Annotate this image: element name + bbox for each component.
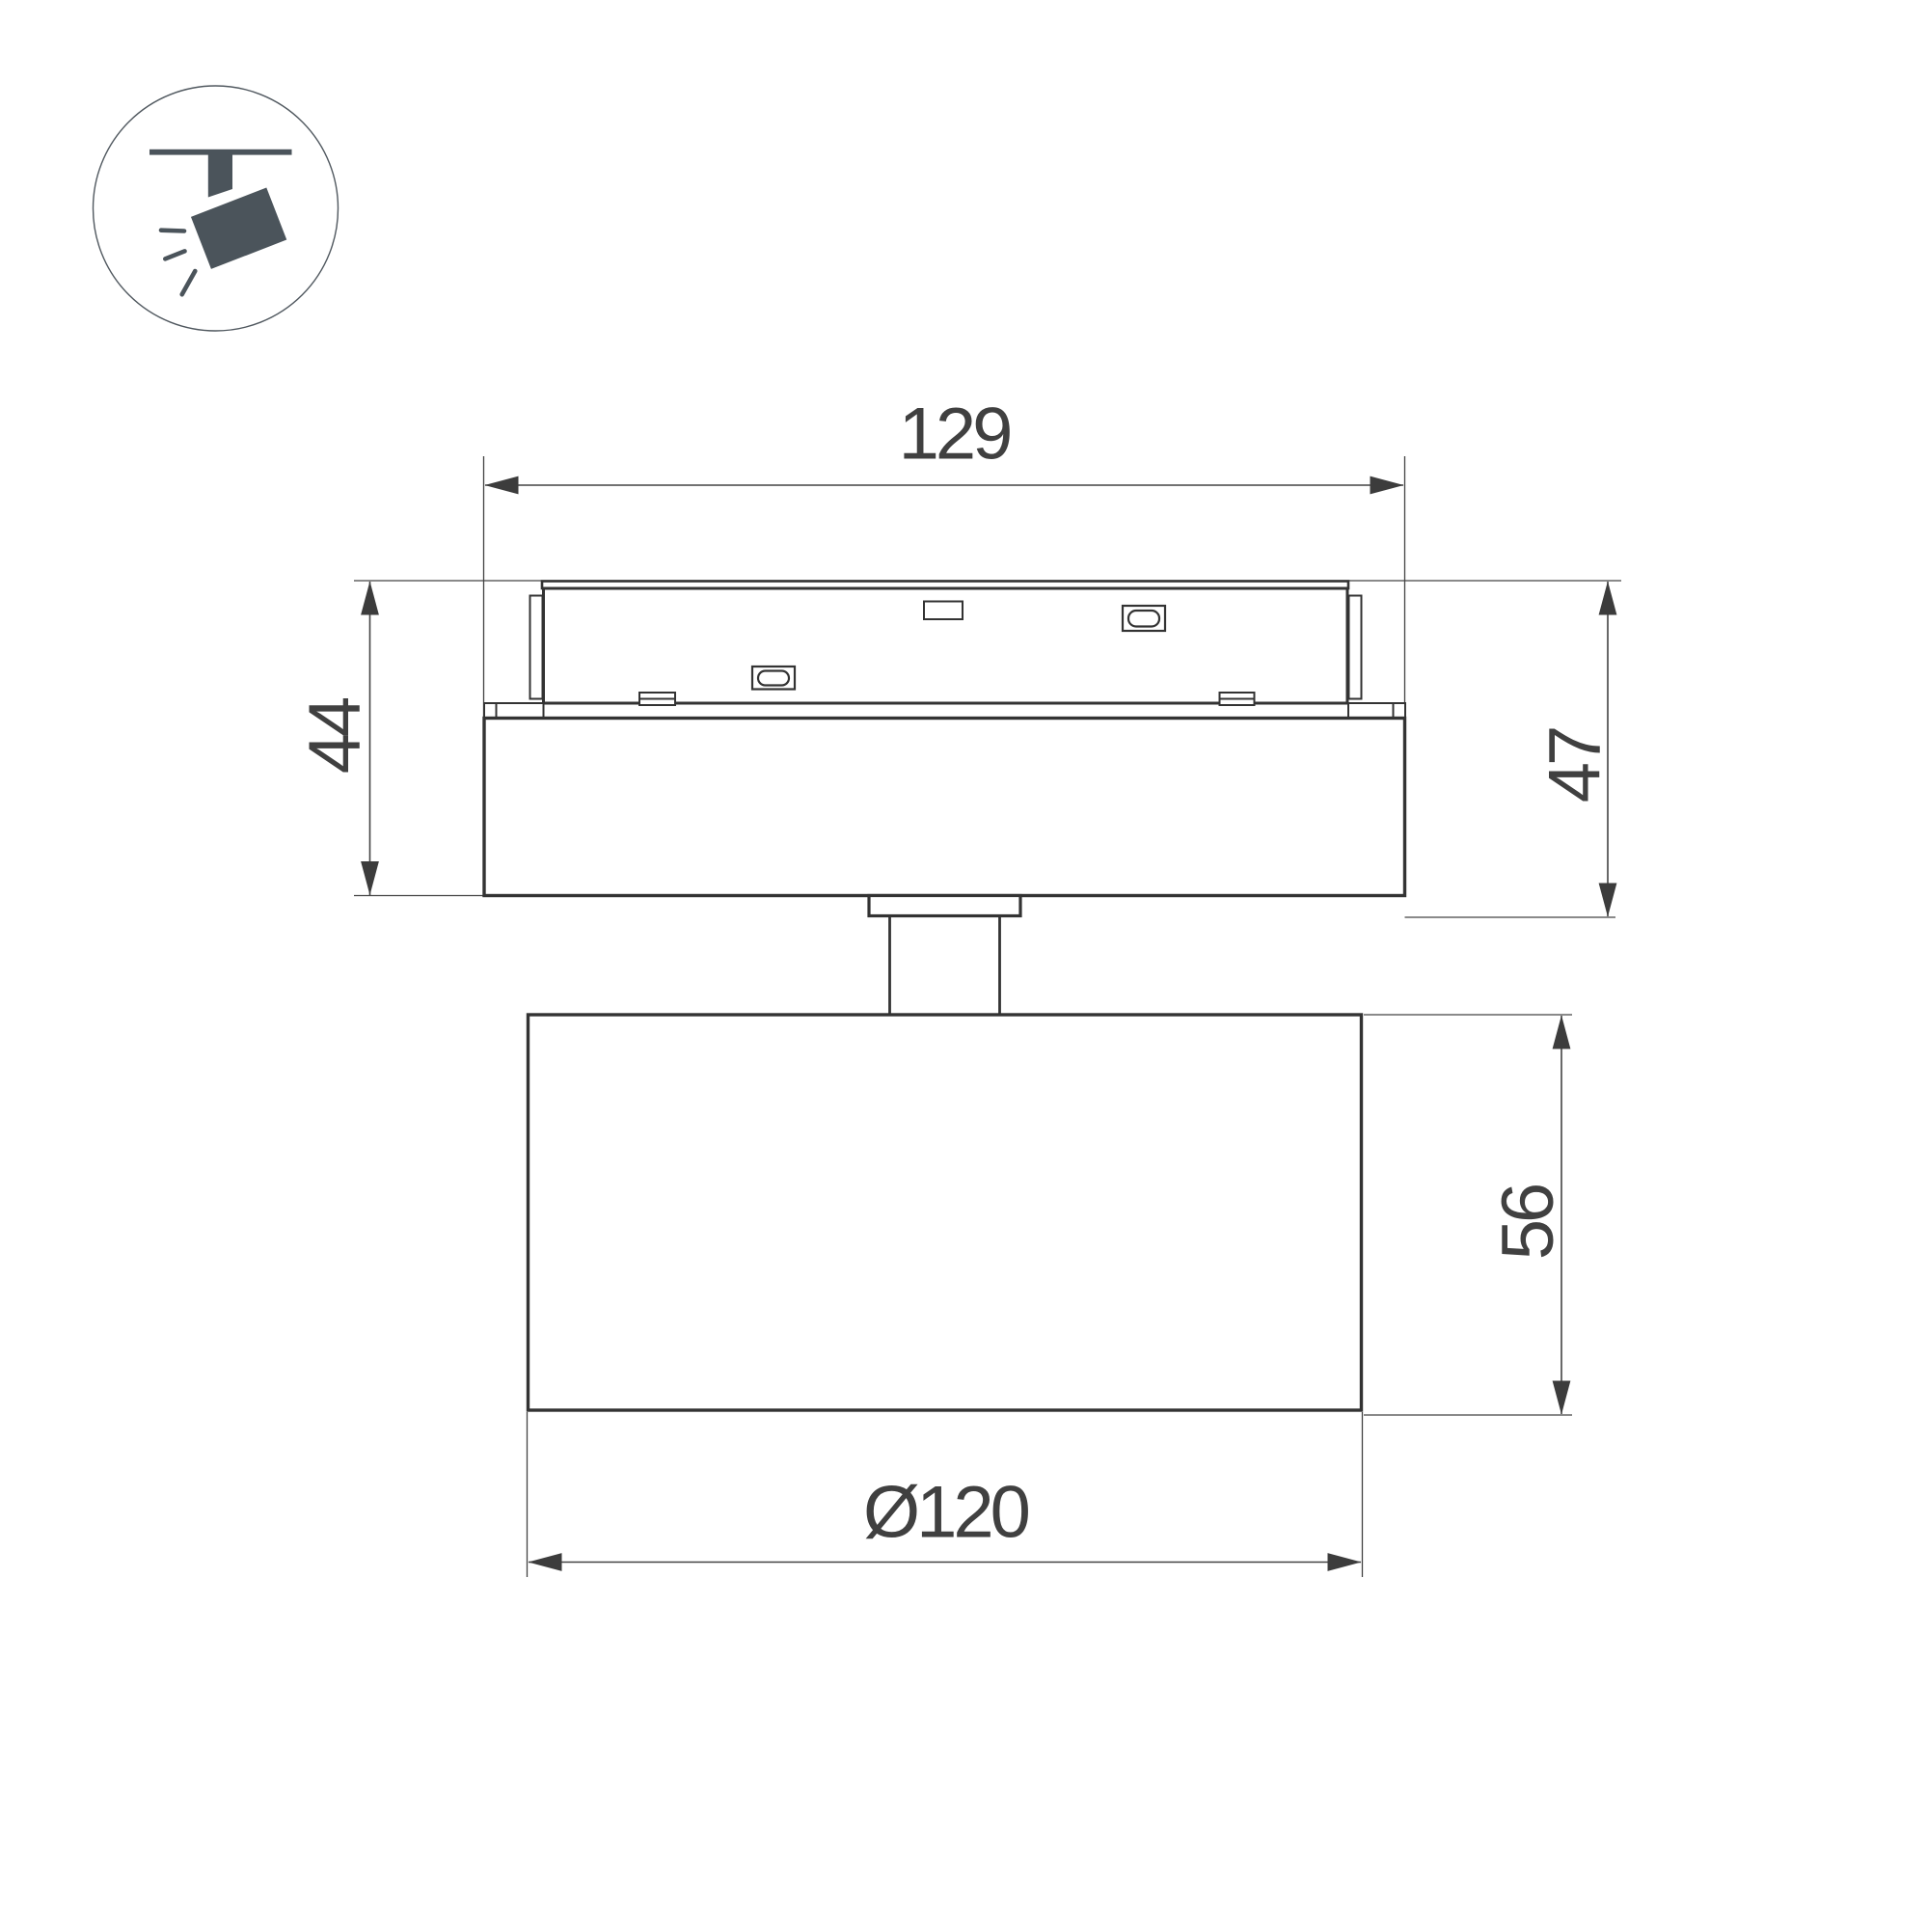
svg-text:Ø120: Ø120 [863,1472,1029,1554]
svg-text:129: 129 [899,394,1011,476]
svg-text:47: 47 [1534,728,1616,803]
svg-text:44: 44 [294,697,376,774]
svg-text:56: 56 [1487,1185,1569,1260]
